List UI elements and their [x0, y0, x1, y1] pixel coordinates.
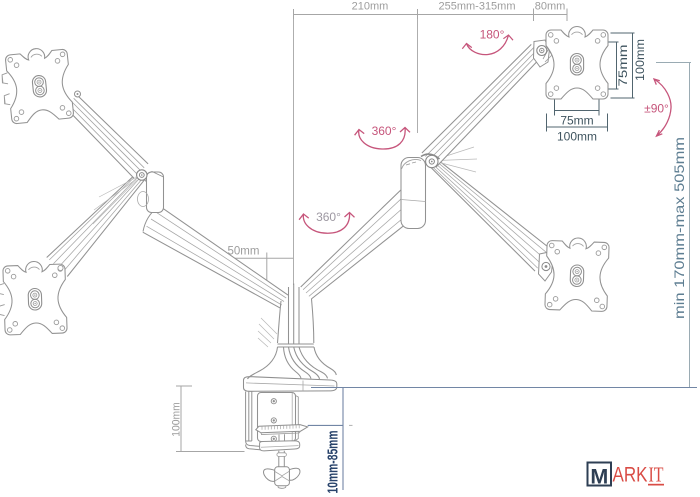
svg-text:10mm-85mm: 10mm-85mm — [325, 431, 342, 494]
svg-text:255mm-315mm: 255mm-315mm — [439, 1, 516, 13]
svg-text:M: M — [590, 465, 608, 489]
svg-text:75mm: 75mm — [616, 45, 630, 87]
svg-text:100mm: 100mm — [171, 402, 183, 437]
svg-text:180°: 180° — [480, 28, 505, 42]
svg-text:360°: 360° — [316, 210, 341, 224]
svg-text:ARK: ARK — [613, 463, 649, 487]
svg-text:min 170mm-max 505mm: min 170mm-max 505mm — [671, 137, 687, 319]
svg-text:100mm: 100mm — [557, 130, 597, 144]
svg-text:50mm: 50mm — [228, 246, 260, 258]
svg-text:100mm: 100mm — [633, 39, 647, 81]
svg-text:±90°: ±90° — [644, 102, 669, 116]
svg-text:IT: IT — [649, 463, 664, 487]
svg-text:75mm: 75mm — [560, 114, 593, 128]
svg-text:210mm: 210mm — [352, 1, 389, 13]
svg-text:360°: 360° — [372, 124, 397, 138]
svg-text:80mm: 80mm — [535, 1, 566, 13]
